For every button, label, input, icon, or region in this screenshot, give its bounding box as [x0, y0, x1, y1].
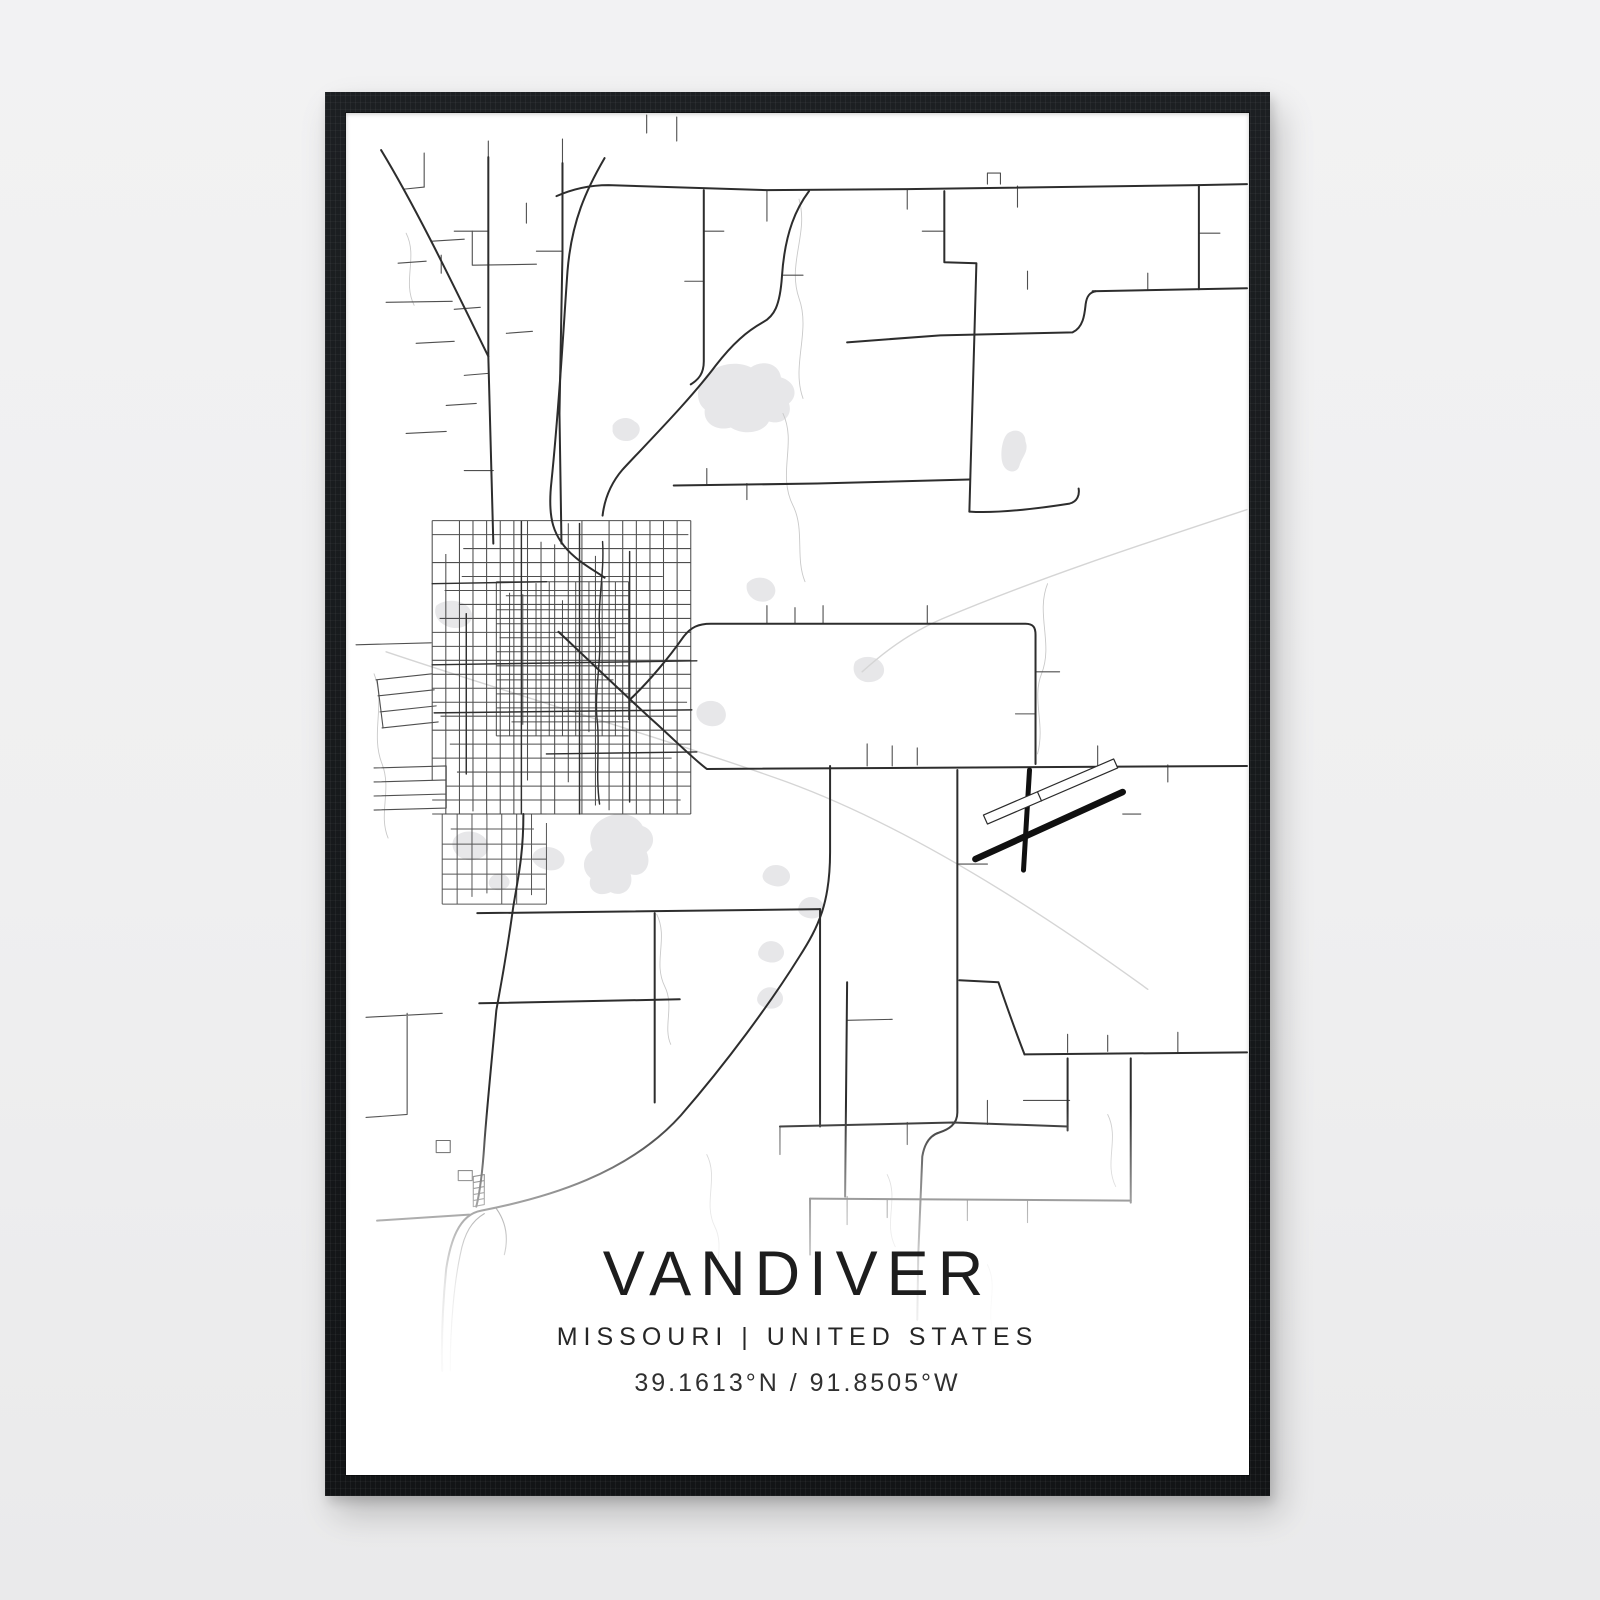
region-subtitle: MISSOURI | UNITED STATES [346, 1323, 1249, 1352]
map-poster: VANDIVER MISSOURI | UNITED STATES 39.161… [346, 113, 1249, 1475]
wall-background: VANDIVER MISSOURI | UNITED STATES 39.161… [0, 0, 1600, 1600]
city-title: VANDIVER [346, 1241, 1249, 1307]
poster-caption: VANDIVER MISSOURI | UNITED STATES 39.161… [346, 1241, 1249, 1398]
coordinates-label: 39.1613°N / 91.8505°W [346, 1369, 1249, 1398]
poster-frame: VANDIVER MISSOURI | UNITED STATES 39.161… [325, 92, 1270, 1496]
